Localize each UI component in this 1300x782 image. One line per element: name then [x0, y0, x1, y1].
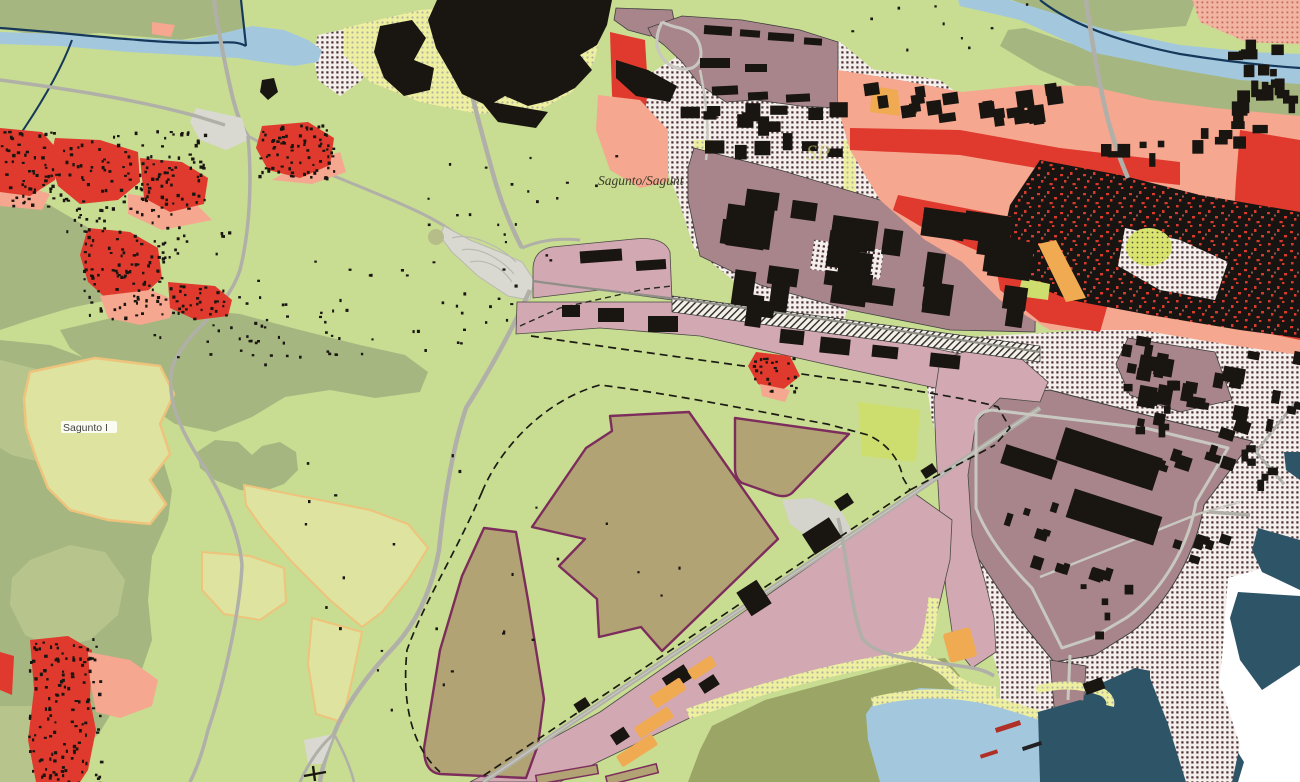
svg-text:Sagunto I: Sagunto I — [63, 422, 108, 434]
svg-text:SP: SP — [806, 140, 830, 165]
svg-text:Sagunto/Sagunt: Sagunto/Sagunt — [598, 173, 685, 188]
